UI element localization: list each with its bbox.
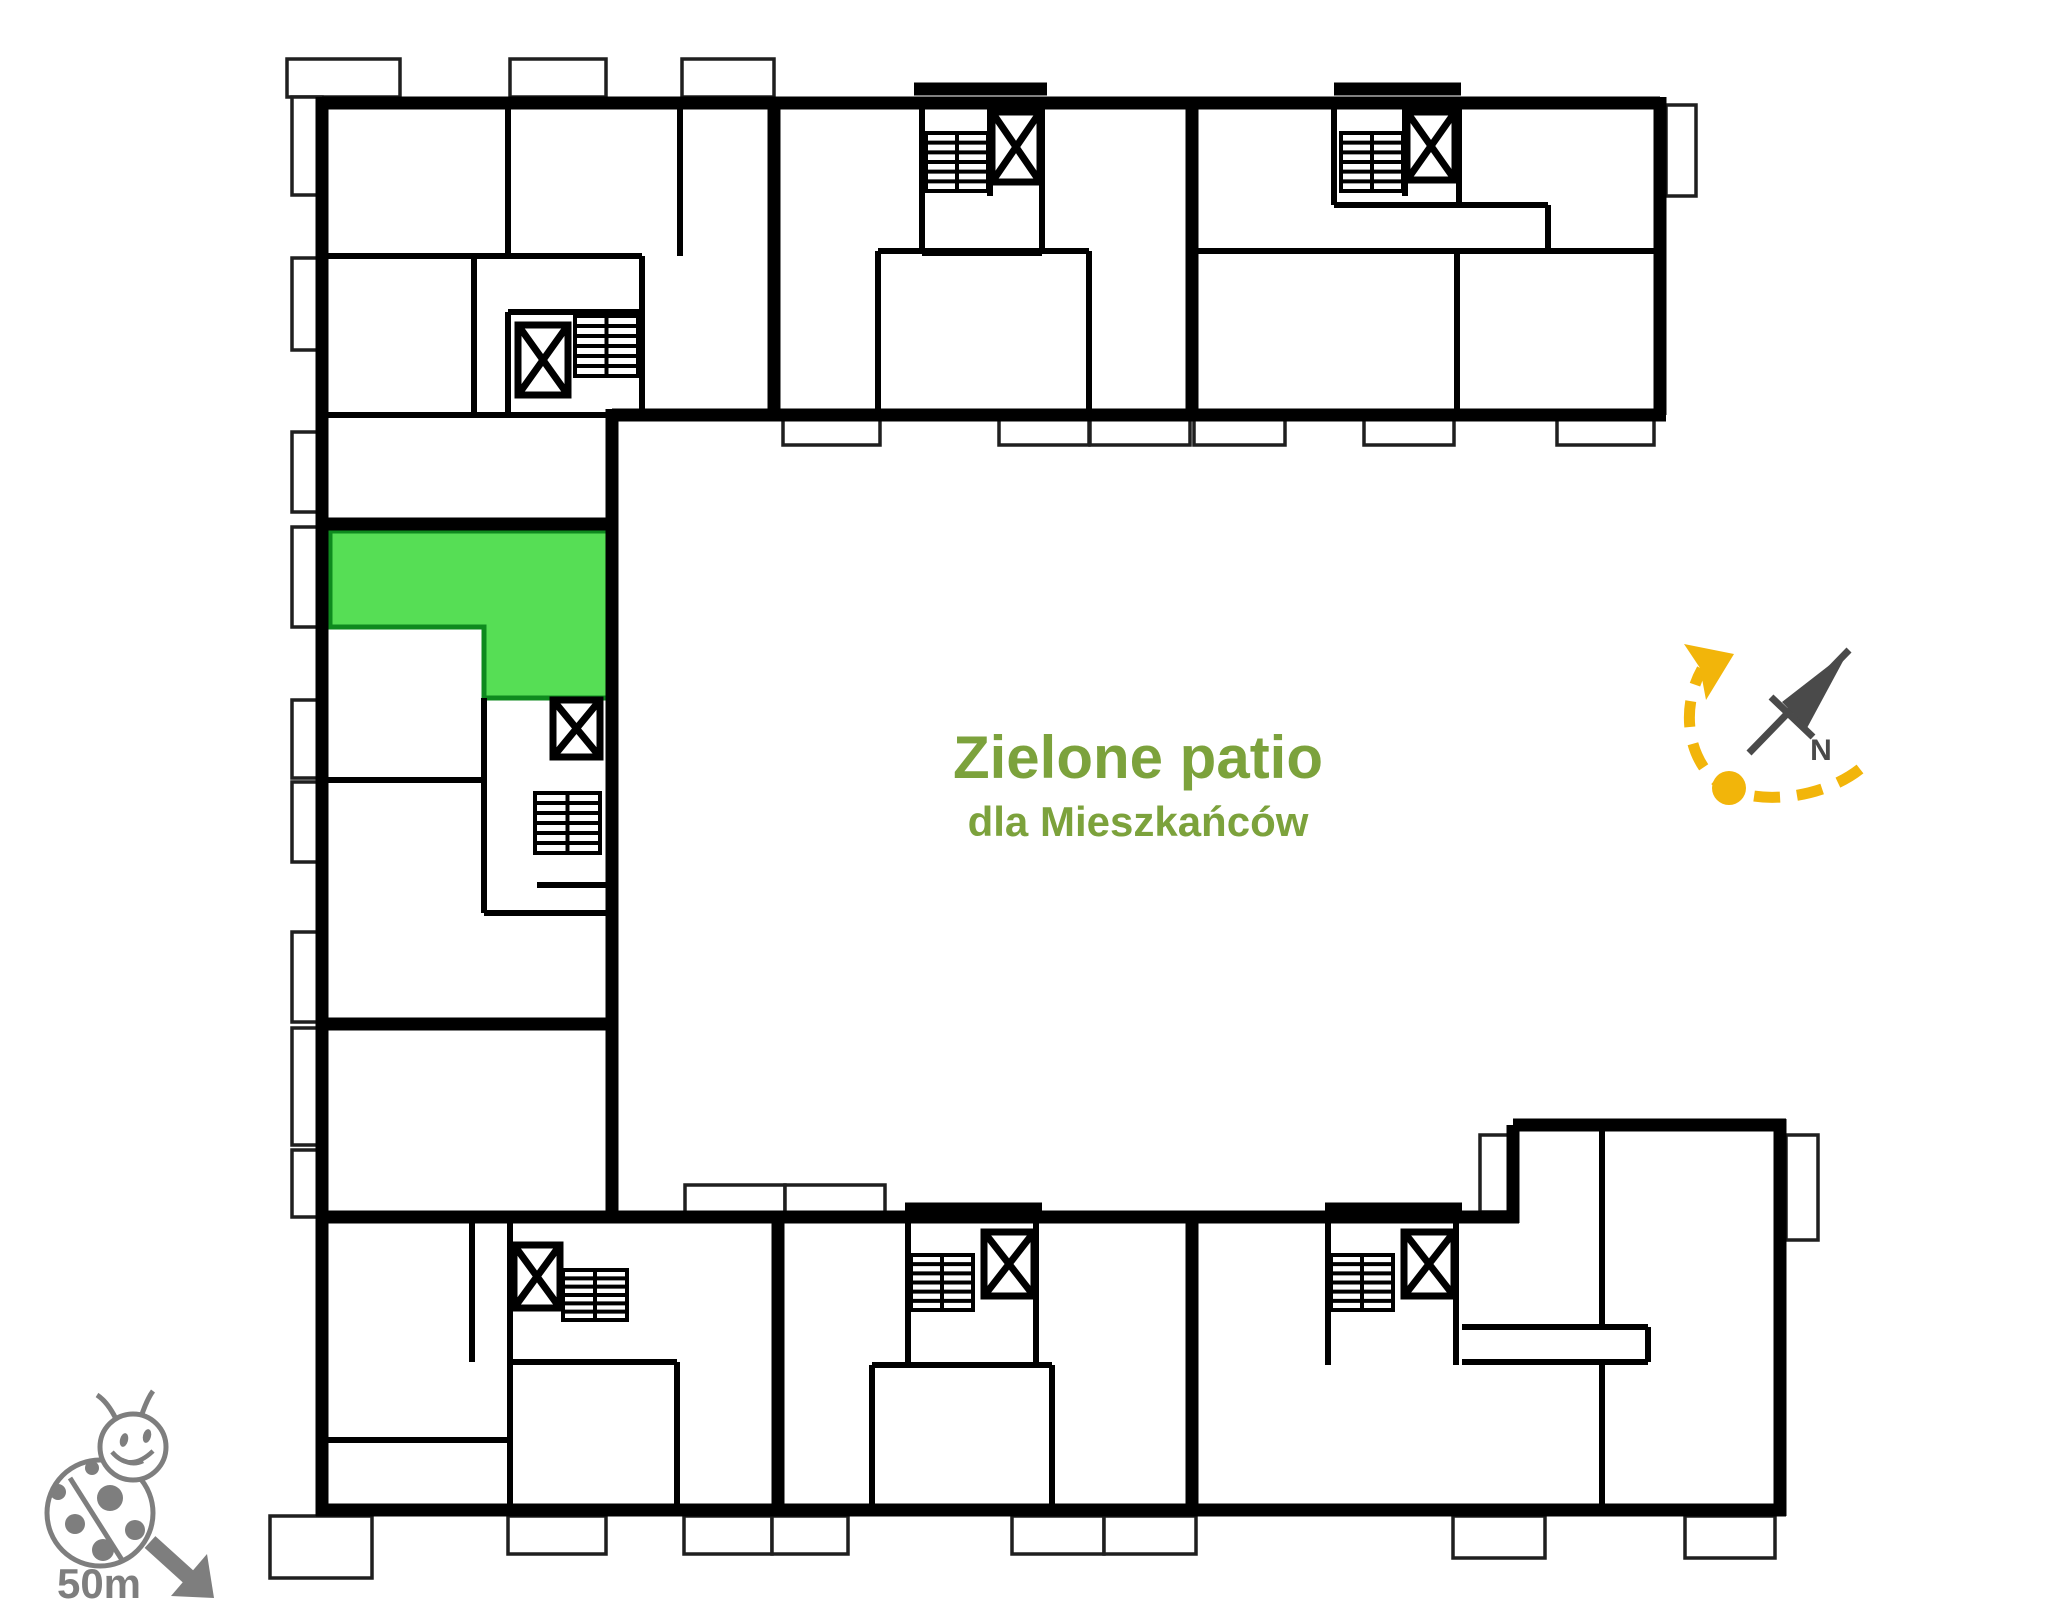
highlighted-apartment-unit[interactable] — [330, 531, 612, 698]
patio-title: Zielone patio — [953, 724, 1323, 791]
balcony — [287, 59, 400, 97]
highlighted-apartment[interactable] — [330, 531, 612, 698]
balcony — [1786, 1135, 1818, 1240]
ladybug-icon — [47, 1391, 166, 1566]
balcony — [682, 59, 774, 97]
route-arrowhead-icon — [1684, 644, 1734, 700]
route-start-dot — [1712, 771, 1746, 805]
compass-icon: N — [1684, 644, 1860, 805]
balcony — [1685, 1516, 1775, 1558]
floorplan-page: Zielone patio dla Mieszkańców N — [0, 0, 2048, 1623]
balcony — [270, 1516, 372, 1578]
balcony — [1104, 1516, 1196, 1554]
scale-arrow-icon — [150, 1542, 214, 1598]
patio-subtitle: dla Mieszkańców — [968, 798, 1309, 845]
north-label: N — [1810, 734, 1832, 767]
elevator-icons — [514, 112, 1455, 1308]
balcony — [772, 1516, 848, 1554]
balcony — [684, 1516, 772, 1554]
balcony — [1012, 1516, 1104, 1554]
balcony — [1666, 105, 1696, 196]
balcony — [510, 59, 606, 97]
balcony — [1453, 1516, 1545, 1558]
balcony — [508, 1516, 606, 1554]
route-dashed-arc — [1689, 669, 1860, 797]
floor-plan: Zielone patio dla Mieszkańców N — [0, 0, 2048, 1623]
scale-label: 50m — [57, 1560, 141, 1607]
